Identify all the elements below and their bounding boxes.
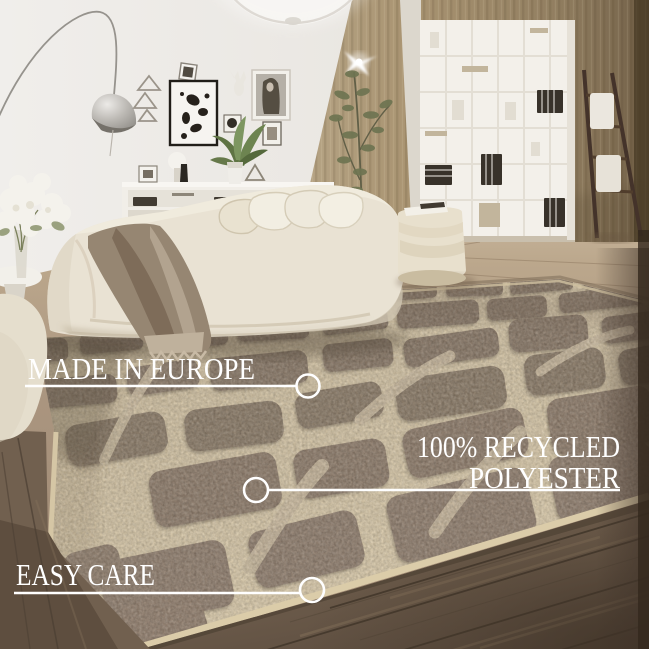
svg-text:EASY CARE: EASY CARE — [16, 557, 155, 592]
svg-text:MADE IN EUROPE: MADE IN EUROPE — [28, 351, 255, 386]
svg-text:100% RECYCLED: 100% RECYCLED — [417, 429, 620, 464]
